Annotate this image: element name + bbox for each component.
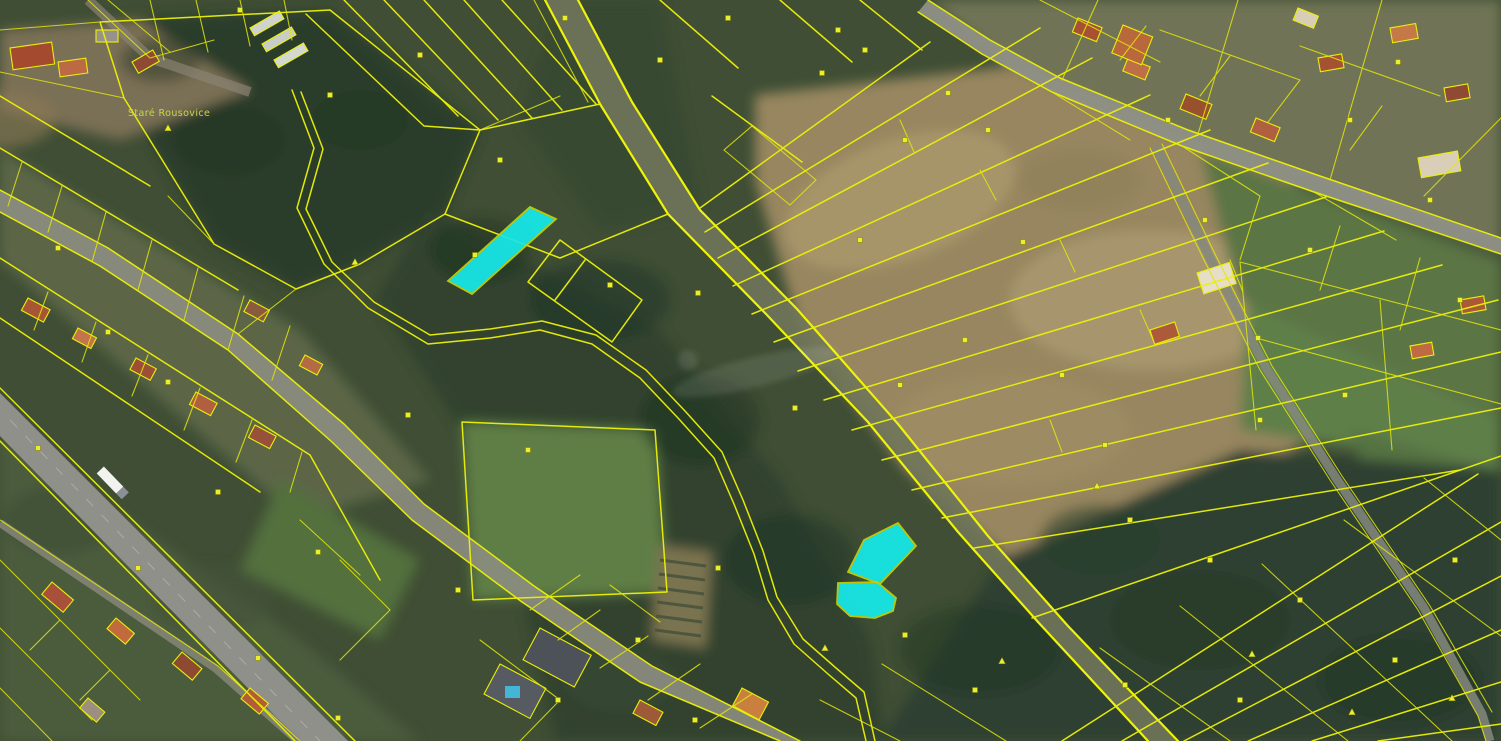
parcel-use-square-marker [1021,240,1026,245]
parcel-use-square-marker [636,638,641,643]
parcel-use-square-marker [1128,518,1133,523]
parcel-use-square-marker [1298,598,1303,603]
parcel-use-square-marker [316,550,321,555]
parcel-use-square-marker [1123,683,1128,688]
parcel-use-square-marker [36,446,41,451]
parcel-use-square-marker [858,238,863,243]
parcel-use-square-marker [1453,558,1458,563]
parcel-use-square-marker [1060,373,1065,378]
parcel-use-square-marker [1203,218,1208,223]
parcel-use-square-marker [1103,443,1108,448]
parcel-use-square-marker [136,566,141,571]
parcel-use-square-marker [498,158,503,163]
parcel-use-square-marker [1208,558,1213,563]
parcel-use-square-marker [406,413,411,418]
parcel-use-square-marker [963,338,968,343]
parcel-use-square-marker [256,656,261,661]
parcel-use-square-marker [716,566,721,571]
parcel-use-square-marker [793,406,798,411]
parcel-use-square-marker [1393,658,1398,663]
cadastral-map-svg: Staré Rousovice [0,0,1501,741]
parcel-use-square-marker [1396,60,1401,65]
parcel-use-square-marker [726,16,731,21]
parcel-use-square-marker [1428,198,1433,203]
parcel-use-square-marker [238,8,243,13]
parcel-use-square-marker [473,253,478,258]
place-label: Staré Rousovice [128,108,210,119]
parcel-use-square-marker [336,716,341,721]
parcel-use-square-marker [56,246,61,251]
parcel-use-square-marker [1238,698,1243,703]
parcel-use-square-marker [1348,118,1353,123]
parcel-use-square-marker [696,291,701,296]
parcel-use-square-marker [658,58,663,63]
parcel-use-square-marker [1256,336,1261,341]
map-canvas[interactable]: Staré Rousovice [0,0,1501,741]
parcel-use-square-marker [1166,118,1171,123]
parcel-use-square-marker [986,128,991,133]
parcel-use-square-marker [526,448,531,453]
parcel-use-square-marker [608,283,613,288]
parcel-use-square-marker [1258,418,1263,423]
parcel-use-square-marker [563,16,568,21]
parcel-use-square-marker [556,698,561,703]
parcel-use-square-marker [973,688,978,693]
parcel-use-square-marker [898,383,903,388]
parcel-use-square-marker [456,588,461,593]
parcel-use-square-marker [903,138,908,143]
parcel-use-square-marker [1458,298,1463,303]
parcel-use-square-marker [166,380,171,385]
parcel-use-square-marker [418,53,423,58]
parcel-use-square-marker [863,48,868,53]
swimming-pool [505,686,520,698]
parcel-use-square-marker [216,490,221,495]
parcel-use-square-marker [836,28,841,33]
parcel-use-square-marker [1308,248,1313,253]
parcel-use-square-marker [1343,393,1348,398]
parcel-use-square-marker [106,330,111,335]
parcel-use-square-marker [328,93,333,98]
parcel-use-square-marker [946,91,951,96]
parcel-use-square-marker [693,718,698,723]
parcel-use-square-marker [820,71,825,76]
parcel-use-square-marker [903,633,908,638]
